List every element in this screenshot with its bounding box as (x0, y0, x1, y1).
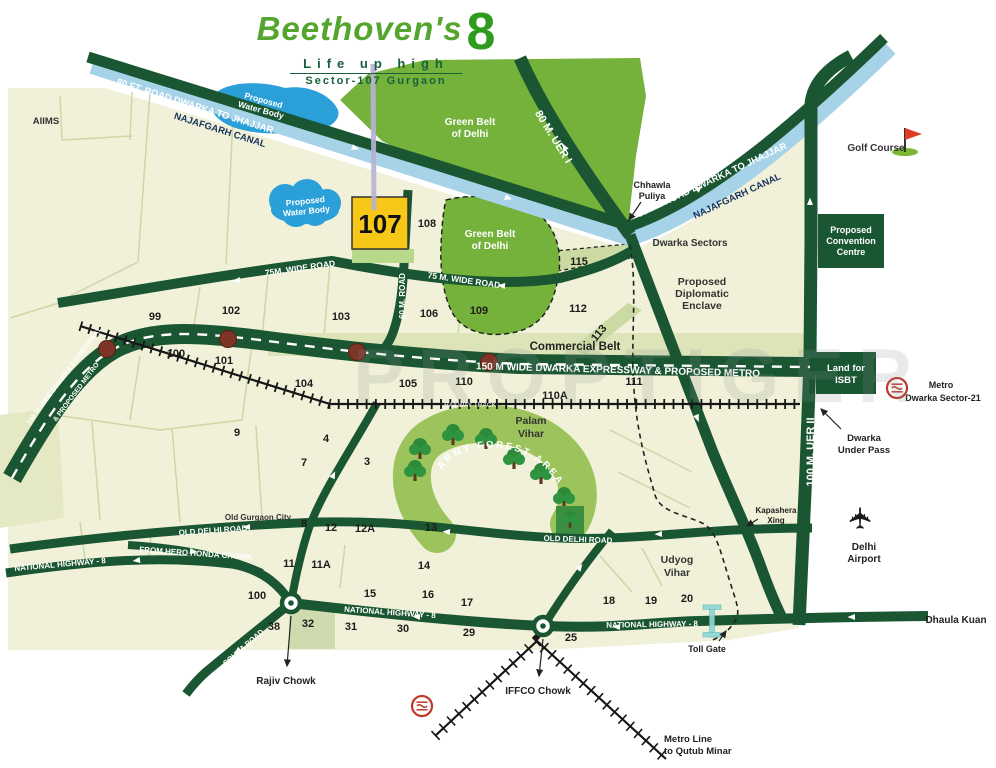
green-belt-1-label: Green Beltof Delhi (445, 117, 496, 140)
dwarka-sectors-label: Dwarka Sectors (652, 238, 727, 249)
svg-text:Metro Line: Metro Line (664, 734, 712, 745)
svg-text:Vihar: Vihar (518, 428, 544, 440)
iffco-chowk-roundabout-icon (534, 617, 552, 635)
sector-number: 108 (418, 218, 436, 230)
sector-number: 11A (311, 559, 331, 571)
sector-number: 8 (301, 518, 307, 530)
metro-logo-icon-south (412, 696, 432, 716)
sector-number: 31 (345, 621, 357, 633)
sector-number: 103 (332, 311, 350, 323)
svg-text:Convention: Convention (826, 236, 876, 246)
sector-number: 106 (420, 308, 438, 320)
plot-107-number: 107 (358, 209, 401, 239)
svg-text:✈: ✈ (845, 505, 878, 530)
sector-number: 115 (570, 256, 588, 268)
aiims-label: AIIMS (33, 116, 59, 127)
svg-text:Vihar: Vihar (664, 567, 690, 579)
sector-number: 29 (463, 627, 475, 639)
svg-text:Metro: Metro (929, 380, 954, 390)
sector-number: 99 (149, 311, 161, 323)
svg-text:Delhi: Delhi (852, 542, 877, 553)
svg-text:Centre: Centre (837, 247, 866, 257)
rajiv-chowk-label: Rajiv Chowk (256, 676, 316, 687)
sector-number: 3 (364, 456, 370, 468)
golf-course-label: Golf Course (847, 143, 905, 154)
sector-number: 112 (569, 303, 587, 315)
sector-number: 109 (470, 305, 488, 317)
svg-text:Diplomatic: Diplomatic (675, 288, 729, 300)
project-logo: Beethoven's8 Life up high Sector-107 Gur… (256, 2, 496, 87)
sector-number: 18 (603, 595, 615, 607)
brand-number: 8 (466, 3, 495, 61)
svg-text:Chhawla: Chhawla (633, 180, 671, 190)
sector-number: 12 (325, 522, 337, 534)
sector-number: 20 (681, 593, 693, 605)
sector-number: 4 (323, 433, 330, 445)
logo-divider (290, 73, 462, 74)
sector-number: 32 (302, 618, 314, 630)
sector-number: 38 (268, 621, 280, 633)
udyog-vihar-label: UdyogVihar (661, 554, 694, 579)
nh8-right-label: NATIONAL HIGHWAY - 8 (606, 619, 698, 630)
watermark: PROPTIGER (353, 334, 927, 419)
sector-number: 25 (565, 632, 577, 644)
plot-107-strip (352, 249, 414, 263)
uer2-label: 100 M. UER II (805, 417, 817, 486)
sector-number: 104 (295, 378, 314, 390)
sector-number: 30 (397, 623, 409, 635)
diplomatic-enclave-label: ProposedDiplomaticEnclave (675, 276, 729, 312)
iffco-chowk-label: IFFCO Chowk (505, 686, 571, 697)
sector-number: 101 (215, 355, 233, 367)
toll-gate-label: Toll Gate (688, 644, 726, 654)
svg-text:of Delhi: of Delhi (452, 129, 489, 140)
sector-number: 15 (364, 588, 376, 600)
location-map: ✈ 107 AIIMS ProposedWater Body Prop (0, 0, 996, 768)
road60-label: 60 M. ROAD (398, 273, 407, 319)
svg-text:Kapashera: Kapashera (756, 506, 797, 515)
svg-text:Udyog: Udyog (661, 554, 694, 566)
svg-text:Airport: Airport (847, 554, 881, 565)
svg-text:Green Belt: Green Belt (445, 117, 496, 128)
svg-text:Dwarka: Dwarka (847, 433, 882, 444)
svg-text:Xing: Xing (767, 516, 784, 525)
svg-text:Enclave: Enclave (682, 300, 722, 312)
sector-number: 9 (234, 427, 240, 439)
svg-text:Green Belt: Green Belt (465, 229, 516, 240)
sector-number: 7 (301, 457, 307, 469)
dhaula-kuan-label: Dhaula Kuan (925, 615, 986, 626)
sector-number: 100 (167, 348, 185, 360)
svg-text:Puliya: Puliya (639, 191, 667, 201)
svg-text:of Delhi: of Delhi (472, 241, 509, 252)
sector-number: 13 (425, 522, 437, 534)
sector-number: 14 (418, 560, 431, 572)
old-gurgaon-label: Old Gurgaon City (225, 513, 292, 522)
rajiv-chowk-roundabout-icon (282, 594, 300, 612)
sector-number: 17 (461, 597, 473, 609)
sector-number: 12A (355, 523, 375, 535)
sector-number: 19 (645, 595, 657, 607)
svg-text:Proposed: Proposed (830, 225, 872, 235)
delhi-airport-label: DelhiAirport (847, 542, 881, 565)
svg-text:to Qutub Minar: to Qutub Minar (664, 746, 732, 757)
sector-number: 100 (248, 590, 266, 602)
map-canvas: ✈ 107 AIIMS ProposedWater Body Prop (0, 0, 996, 768)
metro-line-qutub (435, 641, 666, 759)
green-belt-2-label: Green Beltof Delhi (465, 229, 516, 252)
brand-name: Beethoven's (257, 10, 463, 47)
sector-number: 16 (422, 589, 434, 601)
svg-text:Under Pass: Under Pass (838, 445, 890, 456)
dwarka-underpass-label: DwarkaUnder Pass (838, 433, 890, 456)
sector-number: 11 (283, 558, 295, 570)
brand-location: Sector-107 Gurgaon (256, 75, 496, 87)
svg-text:Proposed: Proposed (678, 276, 726, 288)
qutub-metro-label: Metro Lineto Qutub Minar (664, 734, 732, 757)
airplane-icon: ✈ (845, 505, 878, 530)
sector-number: 102 (222, 305, 240, 317)
